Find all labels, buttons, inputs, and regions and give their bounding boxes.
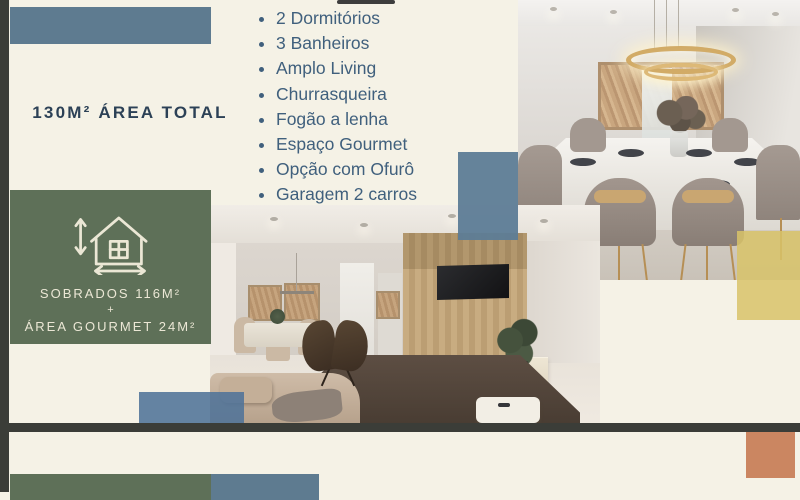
ceiling-spotlight	[732, 8, 739, 12]
feature-item: 2 Dormitórios	[276, 6, 417, 31]
feature-item: Amplo Living	[276, 56, 417, 81]
coffee-table	[476, 397, 540, 423]
feature-item: 3 Banheiros	[276, 31, 417, 56]
feature-item: Opção com Ofurô	[276, 157, 417, 182]
accent-strip-blue	[211, 474, 319, 500]
feature-item: Fogão a lenha	[276, 107, 417, 132]
feature-item: Espaço Gourmet	[276, 132, 417, 157]
badge-line-gourmet: ÁREA GOURMET 24M²	[25, 319, 197, 334]
ceiling-spotlight	[772, 12, 779, 16]
living-room-photo	[210, 205, 600, 427]
headline-area-total: 130M² ÁREA TOTAL	[26, 103, 234, 123]
place-setting	[570, 158, 596, 166]
flyer-canvas: 130M² ÁREA TOTAL 2 Dormitórios 3 Banheir…	[0, 0, 800, 500]
pendant-cable	[666, 0, 667, 50]
cropped-text-fragment	[337, 0, 395, 4]
pendant-ring-light-inner	[644, 63, 718, 81]
area-badge: SOBRADOS 116M² + ÁREA GOURMET 24M²	[10, 190, 211, 344]
divider-bar	[0, 423, 800, 432]
place-setting	[686, 149, 712, 157]
tv-screen	[437, 264, 509, 300]
accent-rect-yellow	[737, 231, 800, 320]
badge-plus: +	[107, 304, 113, 317]
left-edge-bar	[0, 0, 9, 492]
remote-control	[498, 403, 510, 407]
accent-rect-top-left	[10, 7, 211, 44]
wall-art	[284, 283, 320, 321]
chair-leg	[618, 246, 620, 280]
place-setting	[618, 149, 644, 157]
accent-strip-green	[10, 474, 211, 500]
accent-rect-orange	[746, 432, 795, 478]
feature-item: Churrasqueira	[276, 82, 417, 107]
living-left-wall	[210, 241, 236, 365]
pendant-cable	[654, 0, 655, 50]
accent-rect-center	[458, 152, 518, 240]
dining-chair	[712, 118, 748, 152]
house-dimensions-icon	[72, 203, 150, 275]
feature-item: Garagem 2 carros	[276, 182, 417, 207]
pendant-cord	[296, 253, 297, 291]
ceiling-spotlight	[540, 219, 548, 223]
ceiling-spotlight	[610, 10, 617, 14]
ceiling-spotlight	[270, 217, 278, 221]
ceiling-spotlight	[360, 223, 368, 227]
chair-leg	[706, 246, 708, 280]
dining-ceiling	[518, 0, 800, 26]
chair-wood-band	[594, 190, 646, 203]
ceiling-spotlight	[550, 7, 557, 11]
badge-line-sobrados: SOBRADOS 116M²	[40, 286, 181, 301]
dining-chair	[756, 145, 800, 220]
ceiling-spotlight	[448, 214, 456, 218]
dining-chair	[570, 118, 606, 152]
dining-chair-foreground	[672, 178, 744, 246]
table-plant	[270, 309, 285, 324]
feature-list: 2 Dormitórios 3 Banheiros Amplo Living C…	[257, 6, 417, 208]
linear-pendant-light	[280, 291, 314, 294]
pendant-cable	[678, 0, 679, 50]
chair-wood-band	[682, 190, 734, 203]
wall-art	[376, 291, 400, 319]
